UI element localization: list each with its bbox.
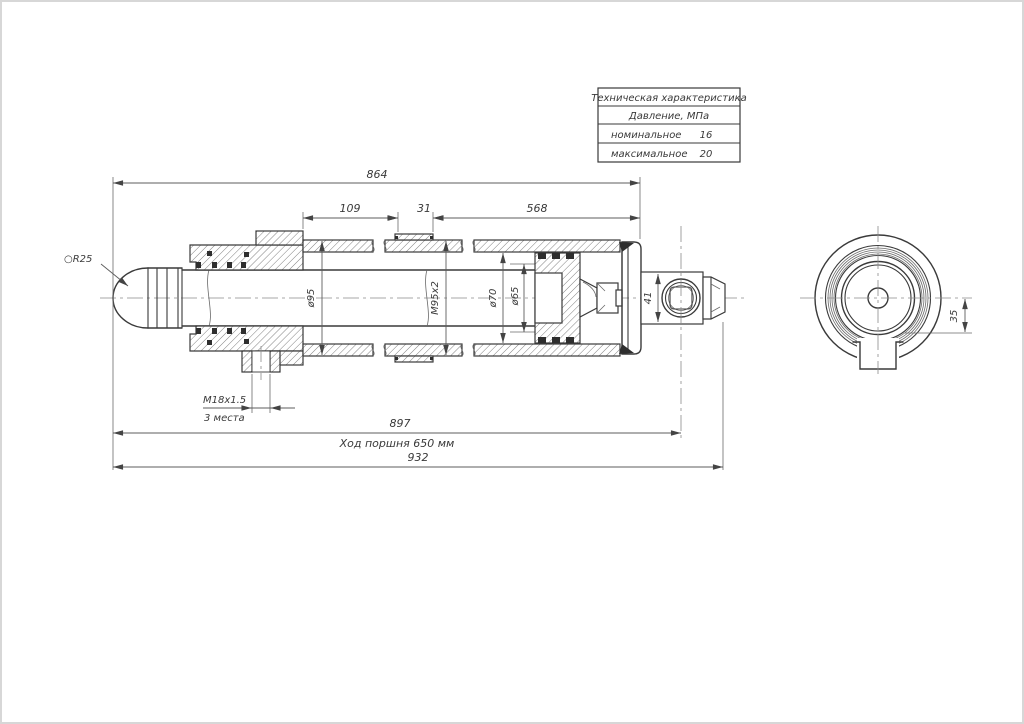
sphere-radius-label: ○R25 bbox=[64, 254, 92, 265]
rear-cap bbox=[619, 242, 641, 354]
oil-port-boss bbox=[242, 346, 280, 380]
spec-table-subtitle: Давление, МПа bbox=[628, 111, 709, 122]
spec-row-max-value: 20 bbox=[700, 149, 713, 160]
side-view: 35 bbox=[800, 226, 972, 374]
dim-109-label: 109 bbox=[340, 202, 361, 215]
spec-row-max-label: максимальное bbox=[611, 149, 687, 160]
port-thread-label: M18x1.5 bbox=[203, 395, 246, 406]
barrel-ring-bottom bbox=[395, 356, 433, 362]
main-view bbox=[100, 226, 748, 438]
bore-65-label: ø65 bbox=[510, 287, 521, 307]
piston-nut bbox=[597, 283, 618, 313]
bore-70-label: ø70 bbox=[488, 289, 499, 309]
side-offset-label: 35 bbox=[949, 310, 960, 323]
dim-568-label: 568 bbox=[527, 202, 548, 215]
gland-nut-top bbox=[256, 231, 303, 245]
barrel-ring-top bbox=[395, 234, 433, 240]
eye-width-label: 41 bbox=[643, 292, 654, 305]
rod-sphere-end bbox=[113, 268, 182, 328]
spec-table-title: Техническая характеристика bbox=[591, 93, 747, 104]
spec-row-nominal-label: номинальное bbox=[611, 130, 681, 141]
barrel-thread-label: M95x2 bbox=[430, 281, 441, 315]
stroke-note-label: Ход поршня 650 мм bbox=[339, 437, 455, 450]
port-places-label: 3 места bbox=[204, 413, 245, 424]
rear-fitting bbox=[703, 277, 725, 319]
drawing-sheet: 864 109 31 568 M18x1.5 3 места 897 Ход п… bbox=[0, 0, 1024, 724]
spec-row-nominal-value: 16 bbox=[700, 130, 713, 141]
dim-31-label: 31 bbox=[417, 202, 431, 215]
dim-864-label: 864 bbox=[367, 168, 388, 181]
dimensions-main: 864 109 31 568 M18x1.5 3 места 897 Ход п… bbox=[64, 168, 723, 470]
piston-assembly bbox=[535, 253, 622, 343]
barrel-diameter-label: ø95 bbox=[306, 289, 317, 309]
dim-897-label: 897 bbox=[390, 417, 411, 430]
dim-932-label: 932 bbox=[408, 451, 429, 464]
technical-drawing: 864 109 31 568 M18x1.5 3 места 897 Ход п… bbox=[0, 0, 1024, 724]
mounting-eye bbox=[641, 226, 703, 438]
spec-table: Техническая характеристика Давление, МПа… bbox=[591, 88, 747, 162]
